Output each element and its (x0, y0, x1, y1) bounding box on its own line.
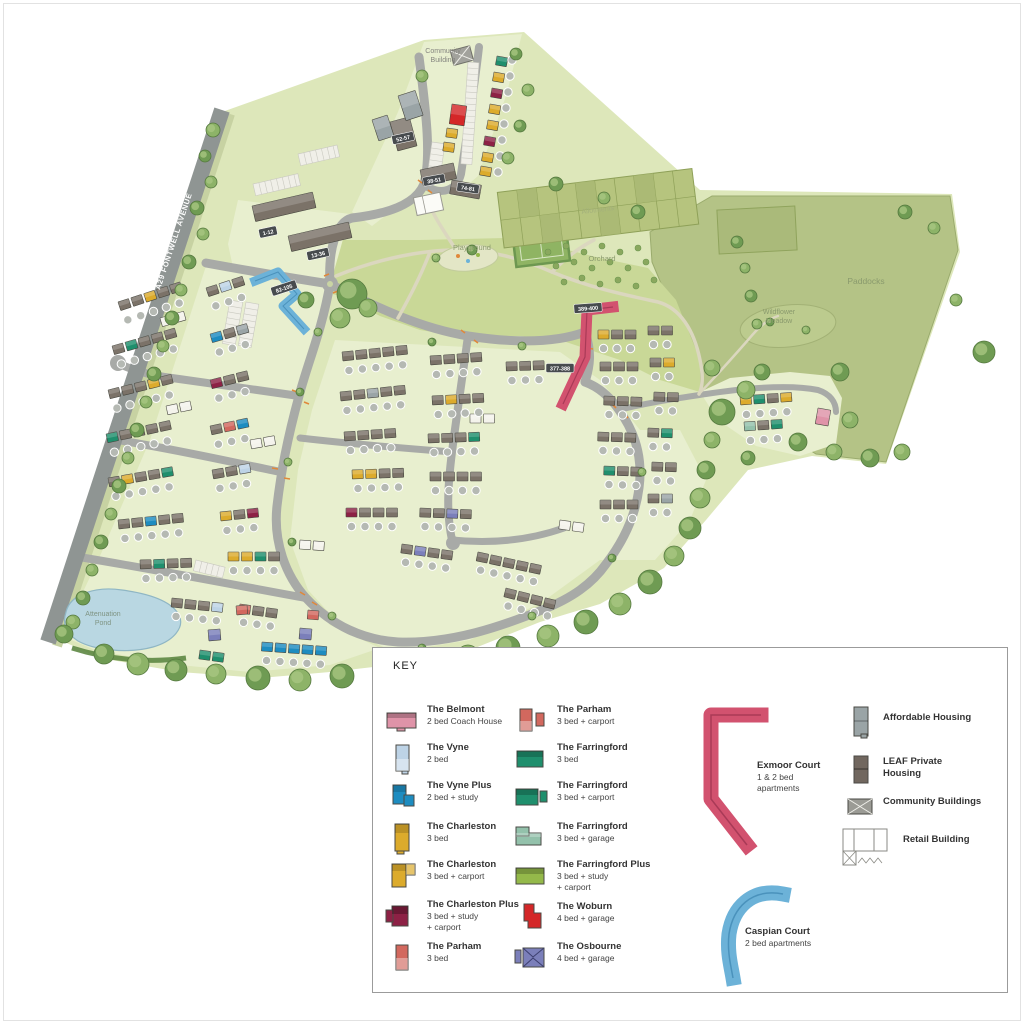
house (365, 469, 376, 478)
tree-highlight (332, 310, 343, 321)
tree-highlight (681, 519, 693, 531)
plot-number-circle (236, 525, 244, 533)
house (146, 423, 159, 434)
legend-swatch-retail (841, 822, 891, 868)
plot-number-circle (316, 660, 324, 668)
house-roof-face (631, 397, 642, 402)
house (367, 388, 379, 398)
plot-number-circle (360, 445, 368, 453)
house-roof-face (472, 393, 483, 398)
orchard-tree (635, 245, 641, 251)
house (667, 392, 678, 401)
house (664, 358, 675, 367)
tree-highlight (511, 49, 518, 56)
plot-number-circle (599, 344, 607, 352)
house (184, 599, 196, 609)
house (396, 345, 408, 355)
tree-highlight (129, 655, 141, 667)
tree-highlight (131, 424, 139, 432)
legend-swatch-parham-carport (513, 704, 549, 738)
house (161, 467, 173, 478)
plot-number-circle (448, 410, 456, 418)
plot-number-circle (152, 485, 160, 493)
plot-number-circle (385, 362, 393, 370)
legend-name: Exmoor Court (757, 760, 820, 772)
plot-number-circle (396, 401, 404, 409)
plot-number-circle (150, 440, 158, 448)
plot-number-circle (432, 370, 440, 378)
house (233, 509, 245, 519)
house (472, 393, 483, 403)
house (255, 552, 266, 561)
legend-desc: 3 bed + carport (557, 716, 614, 727)
house-roof-face (379, 469, 390, 474)
plot-number-circle (503, 572, 511, 580)
plot-number-circle (175, 299, 183, 307)
legend-swatch-vyne (385, 742, 419, 776)
legend-item-farringford-garage: The Farringford3 bed + garage (513, 821, 628, 855)
plot-number-circle (653, 476, 661, 484)
legend-swatch-belmont (385, 704, 419, 738)
house (767, 393, 779, 403)
tree-highlight (176, 285, 183, 292)
plot-number-circle (388, 522, 396, 530)
legend-name: The Woburn (557, 901, 614, 913)
house (627, 500, 638, 509)
tree-highlight (285, 459, 289, 463)
paddock-pen (717, 206, 797, 254)
tree-highlight (929, 223, 936, 230)
house (771, 419, 783, 429)
legend-item-vyne-plus: The Vyne Plus2 bed + study (385, 780, 492, 814)
house (346, 508, 357, 517)
label-community-building: Community Building (408, 44, 478, 70)
house-roof-face (625, 330, 636, 335)
house (479, 166, 491, 177)
house-roof-face (371, 429, 382, 434)
tree-highlight (899, 206, 907, 214)
plot-number-circle (517, 605, 525, 613)
plot-number-circle (504, 602, 512, 610)
house-roof-face (447, 509, 458, 514)
tree-highlight (123, 453, 130, 460)
legend-desc: 4 bed + garage (557, 953, 621, 964)
plot-number-circle (769, 408, 777, 416)
plot-number-circle (370, 403, 378, 411)
house (446, 128, 458, 138)
house-roof-face (771, 419, 782, 424)
plot-number-circle (130, 356, 138, 364)
plot-number-circle (239, 618, 247, 626)
house (212, 652, 224, 662)
tree-highlight (113, 480, 121, 488)
house-roof-face (384, 428, 395, 433)
house (753, 394, 765, 404)
plot-number-circle (367, 484, 375, 492)
house (118, 519, 130, 529)
plot-number-circle (237, 293, 245, 301)
plot-number-circle (227, 437, 235, 445)
house-roof-face (744, 421, 755, 426)
tree-highlight (148, 368, 156, 376)
tree-highlight (158, 341, 165, 348)
plot-number-circle (161, 530, 169, 538)
house (239, 463, 251, 474)
house (340, 391, 352, 401)
plot-number-circle (250, 523, 258, 531)
plot-number-circle (303, 659, 311, 667)
plot-number-circle (241, 340, 249, 348)
house (652, 462, 663, 471)
legend-item-charleston-plus: The Charleston Plus3 bed + study + carpo… (385, 899, 519, 933)
tree-highlight (576, 612, 589, 625)
legend-desc: 2 bed apartments (745, 938, 811, 949)
house-roof-face (430, 472, 441, 477)
tree-highlight (611, 595, 623, 607)
orchard-tree (579, 275, 585, 281)
house (211, 602, 223, 612)
house (631, 397, 642, 406)
orchard-tree (561, 279, 567, 285)
plot-number-circle (783, 407, 791, 415)
house (470, 352, 482, 362)
house-roof-face (153, 559, 164, 564)
plot-number-circle (502, 104, 510, 112)
house-roof-face (451, 104, 467, 116)
play-equipment (456, 254, 460, 258)
house-roof-face (614, 500, 625, 505)
plot-number-circle (668, 407, 676, 415)
plot-number-circle (121, 534, 129, 542)
house (302, 645, 314, 655)
tree-highlight (712, 402, 726, 416)
house (307, 610, 319, 620)
house (315, 646, 327, 656)
plot-number-circle (618, 411, 626, 419)
house-roof-face (780, 392, 791, 397)
house (131, 517, 143, 527)
plot-number-circle (110, 448, 118, 456)
house (447, 509, 458, 518)
house (210, 424, 223, 435)
house (600, 362, 611, 371)
house-roof-face (433, 508, 444, 513)
plot-number-circle (126, 401, 134, 409)
tree-highlight (183, 256, 191, 264)
house (166, 404, 179, 415)
label-playground: Playground (453, 243, 491, 252)
house (223, 421, 236, 432)
house (614, 362, 625, 371)
plot-number-circle (434, 410, 442, 418)
tree-highlight (529, 613, 533, 617)
legend-name: The Farringford Plus (557, 859, 650, 871)
orchard-tree (553, 263, 559, 269)
plot-number-circle (529, 577, 537, 585)
plot-number-circle (143, 352, 151, 360)
plot-number-circle (229, 482, 237, 490)
house (179, 401, 192, 412)
house-roof-face (167, 559, 178, 564)
house-roof-face (455, 433, 466, 438)
house (387, 508, 398, 517)
house-roof-face (468, 432, 479, 437)
plot-number-circle (441, 564, 449, 572)
allotment-plot (634, 173, 657, 203)
tree-highlight (300, 294, 309, 303)
tree-highlight (539, 627, 551, 639)
house (430, 472, 441, 481)
plot-number-circle (760, 435, 768, 443)
tree-highlight (87, 565, 94, 572)
plot-number-circle (504, 88, 512, 96)
plot-number-circle (228, 391, 236, 399)
label-orchard: Orchard (588, 254, 615, 263)
plot-number-circle (224, 297, 232, 305)
legend-swatch-affordable (845, 704, 875, 740)
house (780, 392, 792, 402)
plot-number-circle (665, 372, 673, 380)
plot-number-circle (756, 409, 764, 417)
label-community-building-text: Community Building (408, 44, 478, 70)
house (459, 394, 470, 404)
plot-number-circle (401, 558, 409, 566)
house (662, 494, 673, 503)
plot-number-circle (117, 360, 125, 368)
plot-number-circle (421, 522, 429, 530)
house-roof-face (459, 394, 470, 399)
orchard-tree (643, 259, 649, 265)
house-roof-face (289, 644, 300, 649)
plot-number-circle (628, 376, 636, 384)
legend-swatch-vyne-plus (385, 780, 419, 814)
house (159, 420, 172, 431)
house-roof-face (316, 646, 327, 651)
house-roof-face (308, 610, 319, 615)
legend-item-farringford-carport: The Farringford3 bed + carport (513, 780, 628, 814)
house-roof-face (432, 395, 443, 400)
house (313, 541, 325, 551)
house-roof-face (625, 433, 636, 438)
tree-highlight (828, 446, 837, 455)
legend-item-caspian-court: Caspian Court 2 bed apartments (745, 926, 811, 949)
house-roof-face (627, 500, 638, 505)
house (489, 555, 502, 566)
house (140, 560, 151, 569)
legend-item-community-buildings: Community Buildings (845, 796, 981, 816)
legend-name: Caspian Court (745, 926, 811, 938)
tree-highlight (632, 206, 640, 214)
tree-highlight (756, 366, 765, 375)
plot-number-circle (169, 573, 177, 581)
legend-name: The Charleston (427, 821, 496, 833)
legend-name: Community Buildings (883, 796, 981, 808)
house (648, 326, 659, 335)
plot-number-circle (461, 524, 469, 532)
plot-number-circle (615, 514, 623, 522)
house (648, 428, 659, 437)
house (661, 428, 672, 437)
house (443, 142, 455, 152)
house (371, 429, 383, 439)
house (275, 643, 287, 653)
house (357, 430, 369, 440)
house-roof-face (662, 326, 673, 331)
house (441, 550, 453, 560)
plot-number-circle (599, 446, 607, 454)
legend-item-farringford: The Farringford3 bed (513, 742, 628, 776)
tree-highlight (207, 124, 215, 132)
plot-number-circle (137, 442, 145, 450)
legend-item-leaf-private-housing: LEAF Private Housing (845, 752, 942, 786)
legend-desc: 3 bed + study + carport (427, 911, 519, 933)
house (373, 508, 384, 517)
house-roof-face (648, 428, 659, 433)
house (428, 434, 439, 443)
house (516, 560, 529, 571)
plot-number-circle (605, 410, 613, 418)
label-wildflower-meadow: Wildflower Meadow (746, 306, 812, 330)
tree-highlight (741, 264, 747, 270)
house-roof-face (611, 432, 622, 437)
house (490, 88, 502, 99)
house-roof-face (208, 629, 220, 636)
legend-item-osbourne: The Osbourne4 bed + garage (513, 941, 621, 975)
house (815, 408, 831, 426)
house (131, 294, 144, 306)
plot-number-circle (229, 566, 237, 574)
house (488, 104, 500, 115)
plot-number-circle (490, 569, 498, 577)
house (355, 349, 367, 359)
orchard-tree (599, 243, 605, 249)
house (617, 466, 628, 475)
legend-swatch-community (845, 796, 875, 816)
tree-highlight (191, 202, 199, 210)
house-roof-face (180, 558, 191, 563)
house-roof-face (313, 541, 324, 546)
tree-highlight (791, 435, 801, 445)
house-roof-face (662, 494, 673, 499)
tree-highlight (896, 446, 905, 455)
legend-desc: 3 bed + garage (557, 833, 628, 844)
house (625, 433, 636, 442)
house (392, 468, 403, 477)
house (247, 508, 259, 518)
culdesac-2 (446, 536, 460, 550)
plot-number-circle (162, 303, 170, 311)
plot-number-circle (746, 436, 754, 444)
house-roof-face (242, 552, 253, 557)
house (614, 500, 625, 509)
house-roof-face (519, 361, 530, 366)
plot-number-circle (521, 376, 529, 384)
legend-item-charleston: The Charleston3 bed (385, 821, 496, 855)
house (484, 414, 495, 423)
plot-number-circle (443, 448, 451, 456)
plot-number-circle (663, 340, 671, 348)
house-roof-face (255, 552, 266, 557)
legend-name: The Vyne (427, 742, 469, 754)
house (401, 544, 413, 554)
plot-number-circle (372, 363, 380, 371)
plot-range-badge: 389-400 (574, 303, 603, 314)
house (559, 520, 571, 530)
legend-swatch-charleston-plus (385, 899, 419, 933)
plot-number-circle (535, 375, 543, 383)
plot-number-circle (361, 522, 369, 530)
house-roof-face (445, 395, 456, 400)
house-roof-face (357, 430, 368, 435)
tree-highlight (95, 536, 103, 544)
house (288, 644, 300, 654)
plot-number-circle (228, 344, 236, 352)
plot-number-circle (601, 376, 609, 384)
house (506, 362, 517, 371)
plot-number-circle (214, 440, 222, 448)
tree-highlight (609, 555, 613, 559)
house-roof-face (767, 393, 778, 398)
plot-number-circle (476, 566, 484, 574)
house (617, 396, 628, 405)
house (250, 438, 262, 449)
tree-highlight (106, 509, 113, 516)
house-roof-face (484, 414, 495, 419)
house (449, 104, 467, 126)
tree-highlight (706, 434, 715, 443)
house (665, 462, 676, 471)
plot-number-circle (632, 481, 640, 489)
plot-number-circle (649, 442, 657, 450)
house (242, 552, 253, 561)
plot-number-circle (662, 443, 670, 451)
plot-number-circle (632, 411, 640, 419)
house-roof-face (600, 500, 611, 505)
legend-swatch-woburn (513, 901, 549, 937)
house (460, 509, 471, 518)
tree-highlight (732, 237, 739, 244)
legend-name: The Parham (557, 704, 614, 716)
house (199, 650, 211, 660)
house-roof-face (617, 396, 628, 401)
tree-highlight (844, 414, 853, 423)
plot-number-circle (345, 366, 353, 374)
orchard-tree (633, 283, 639, 289)
plot-number-circle (241, 434, 249, 442)
legend-item-parham-carport: The Parham3 bed + carport (513, 704, 614, 738)
house (483, 136, 495, 147)
house (572, 522, 584, 532)
house (208, 629, 221, 641)
legend-item-belmont: The Belmont2 bed Coach House (385, 704, 502, 738)
house-roof-face (598, 432, 609, 437)
house (650, 358, 661, 367)
plot-number-circle (354, 484, 362, 492)
house (445, 395, 456, 405)
plot-number-circle (459, 368, 467, 376)
orchard-tree (545, 249, 551, 255)
plot-number-circle (742, 410, 750, 418)
tree-highlight (208, 666, 219, 677)
tree-highlight (550, 178, 558, 186)
house (744, 421, 756, 431)
plot-number-circle (262, 656, 270, 664)
legend-swatch-farringford-carport (513, 780, 549, 814)
legend-name: The Parham (427, 941, 481, 953)
house (344, 431, 356, 441)
tree-highlight (198, 229, 205, 236)
house (220, 511, 232, 521)
